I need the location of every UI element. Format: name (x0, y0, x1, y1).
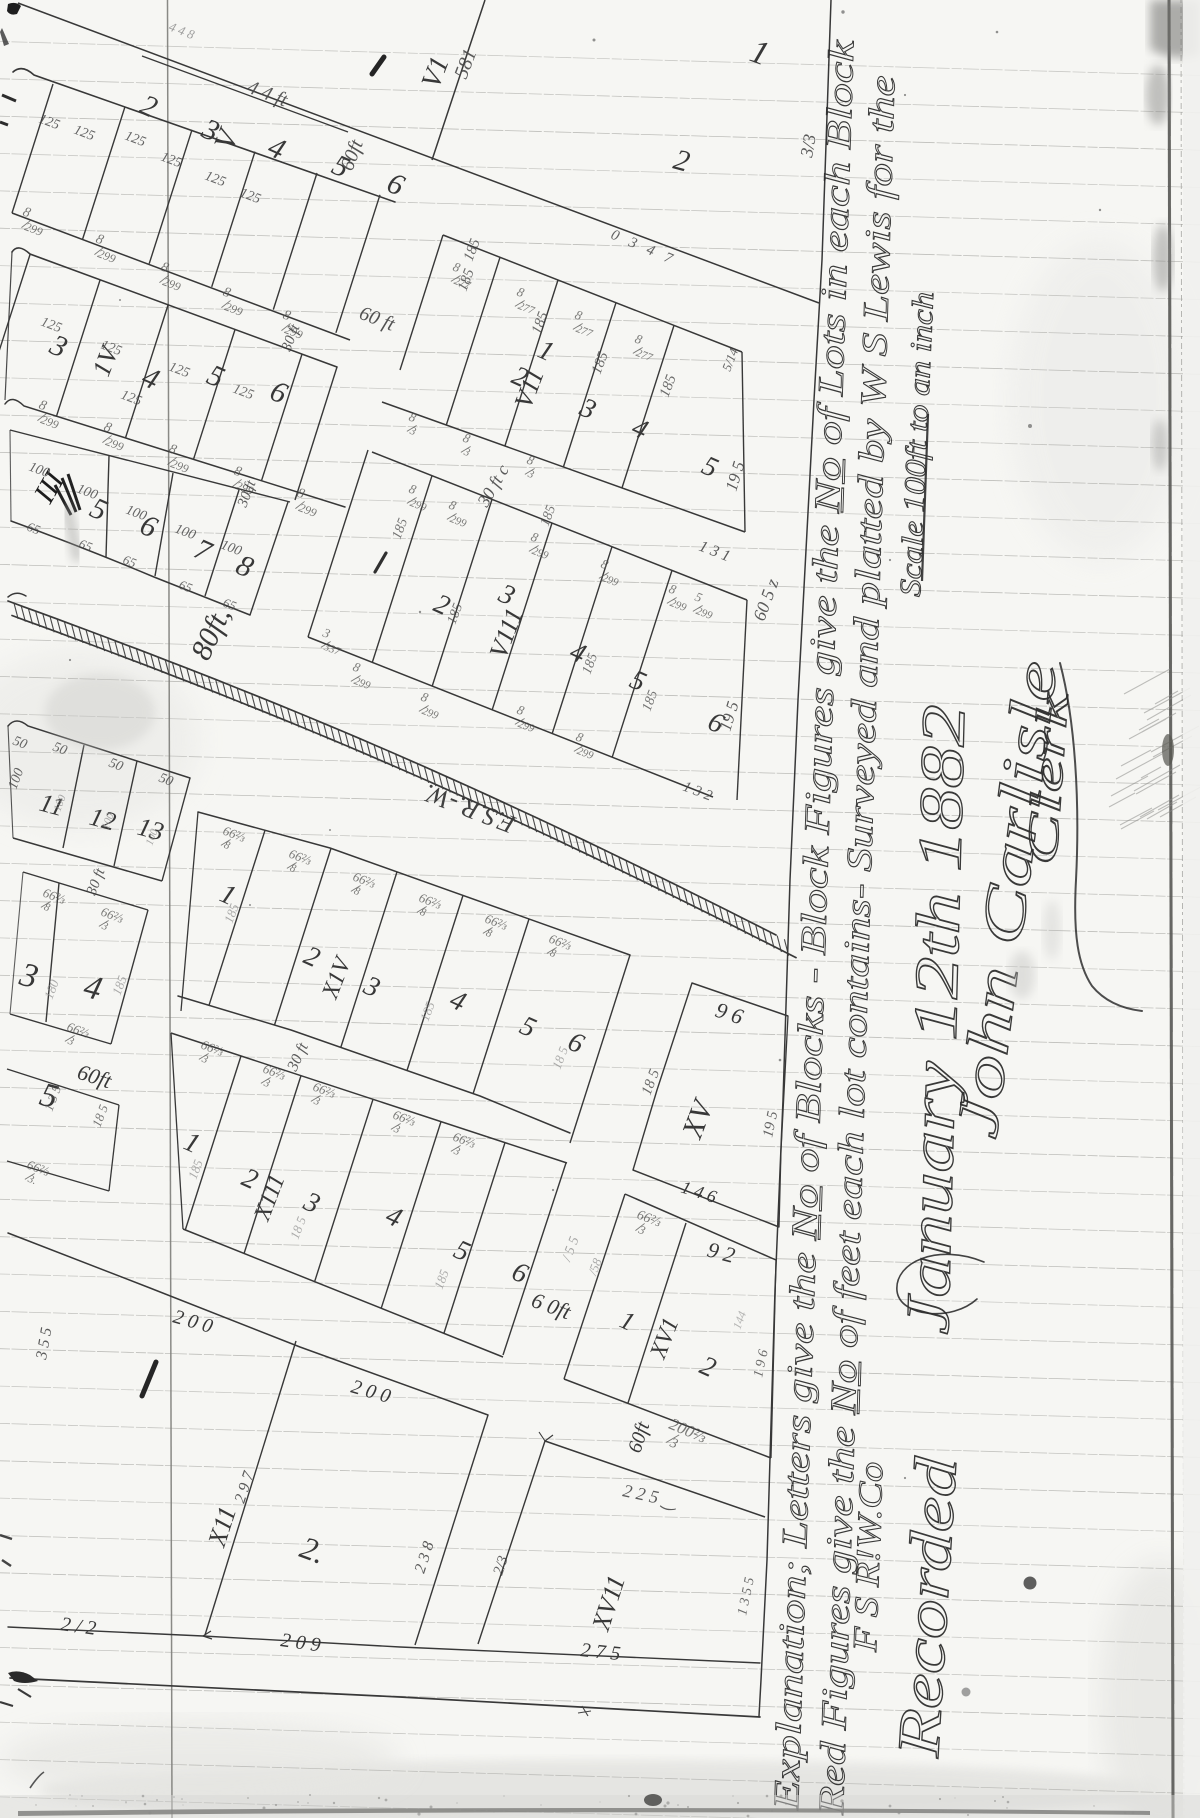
svg-text:F S R!W.Co: F S R!W.Co (847, 1461, 891, 1653)
svg-text:2 7 5: 2 7 5 (579, 1639, 621, 1665)
svg-text:3/3: 3/3 (796, 133, 820, 160)
